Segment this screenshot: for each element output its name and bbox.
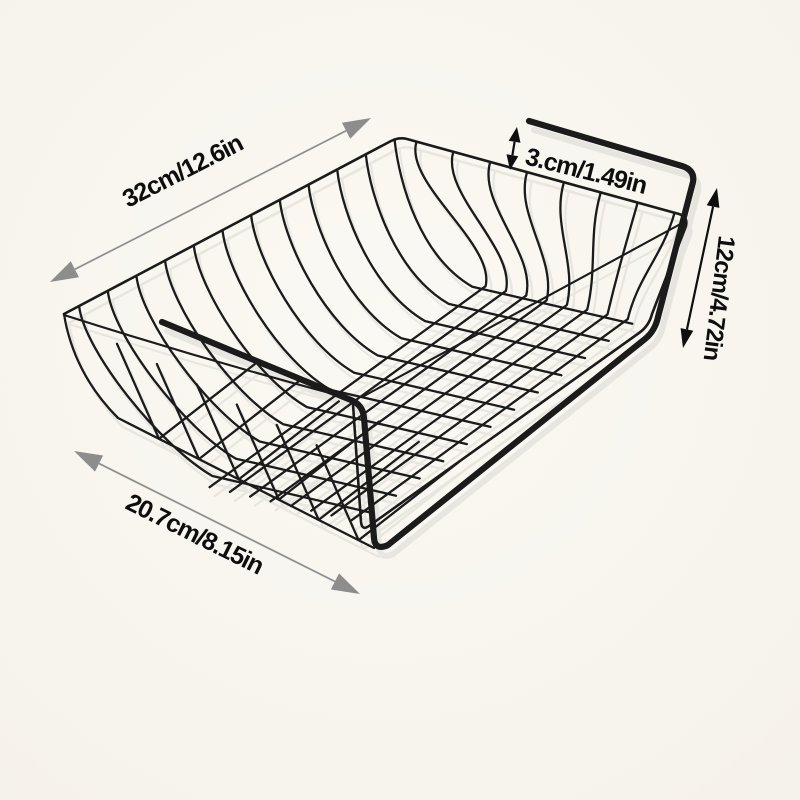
dimension-arrow-depth-head-icon [331, 573, 360, 594]
dimension-label-depth: 20.7cm/8.15in [121, 488, 267, 580]
dimension-arrow-hook-gap-head-icon [509, 127, 521, 143]
dimension-arrow-hook-gap-line [512, 142, 514, 155]
near-right-rim-wire [364, 221, 686, 396]
product-dimension-diagram: 32cm/12.6in 3.cm/1.49in 12cm/4.72in 20.7… [0, 0, 800, 800]
dimension-arrow-length-head-icon [50, 261, 79, 282]
dimension-arrow-height-head-icon [707, 188, 720, 208]
dimension-label-length: 32cm/12.6in [118, 129, 247, 213]
near-left-rim-wire [64, 315, 352, 399]
dimension-arrow-height-head-icon [681, 328, 694, 348]
basket-dimension-illustration: 32cm/12.6in 3.cm/1.49in 12cm/4.72in 20.7… [0, 0, 800, 800]
dimension-arrow-length-head-icon [342, 118, 371, 139]
dimension-arrow-depth [74, 451, 360, 594]
left-wall-wire [223, 230, 491, 427]
dimension-arrow-depth-head-icon [74, 451, 103, 472]
dimension-arrow-hook-gap [507, 127, 521, 170]
left-wall-wire [108, 291, 396, 496]
